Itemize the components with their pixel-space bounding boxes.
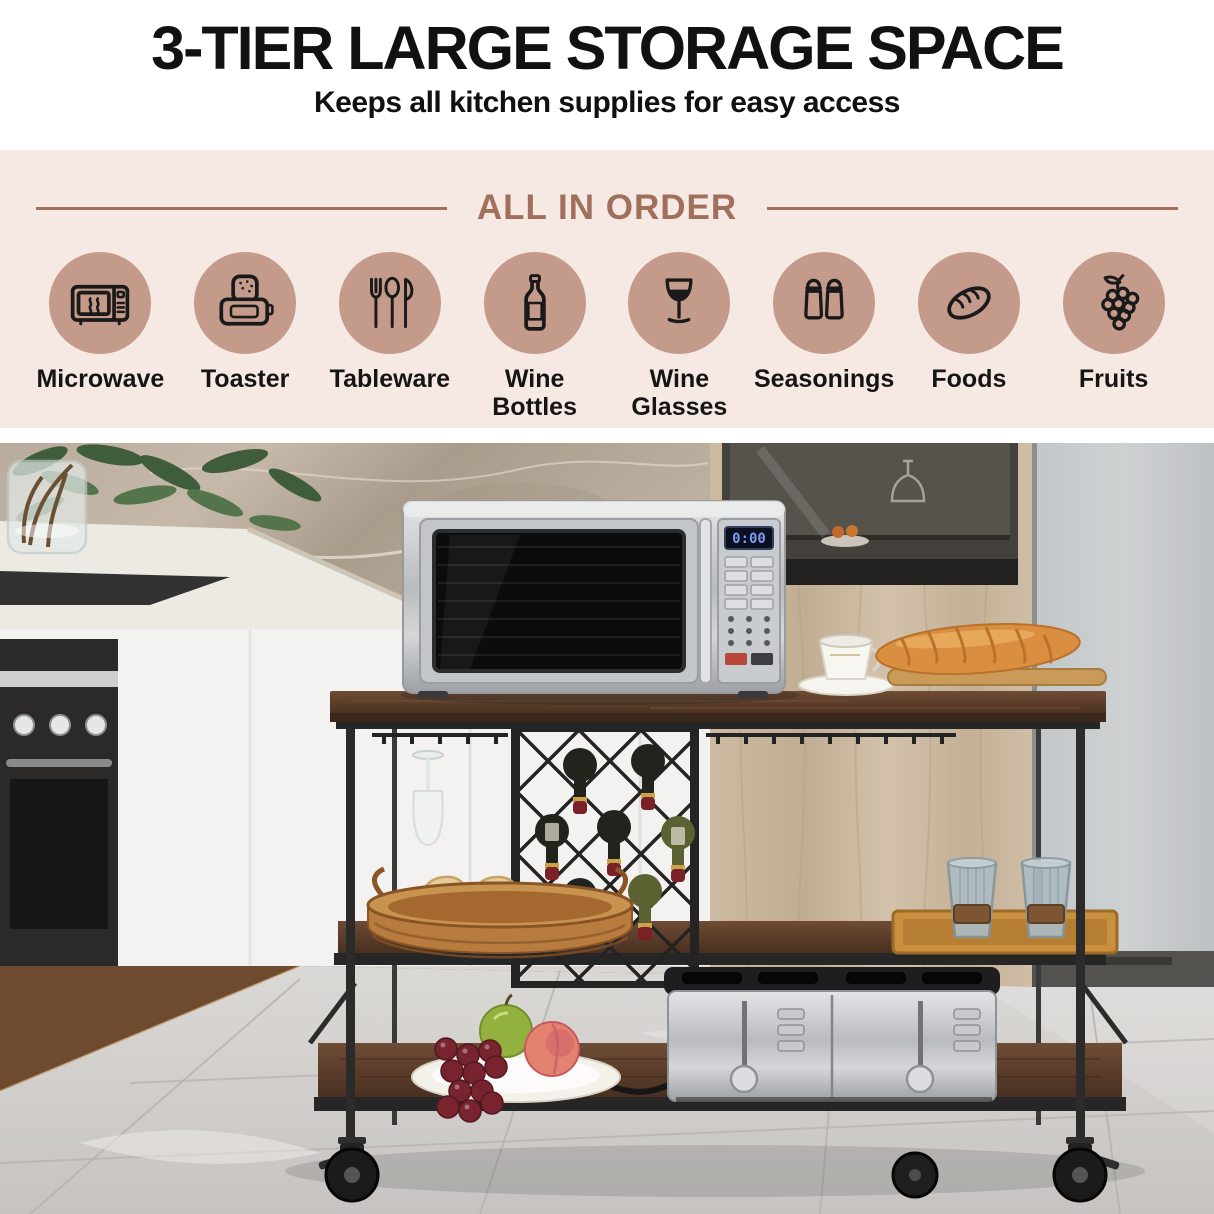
feature-item-microwave: Microwave <box>28 252 173 421</box>
feature-item-wine-glasses: Wine Glasses <box>607 252 752 421</box>
cart-shadow <box>285 1145 1145 1197</box>
feature-label: Foods <box>931 365 1006 393</box>
glass-vase <box>8 461 86 553</box>
heading-rule-left <box>36 207 447 210</box>
microwave-icon <box>63 266 137 340</box>
feature-item-tableware: Tableware <box>318 252 463 421</box>
product-infographic: { "header": { "title": "3-TIER LARGE STO… <box>0 0 1214 1214</box>
feature-icons-row: Microwave Toaster <box>0 252 1214 421</box>
features-section: ALL IN ORDER <box>0 150 1214 428</box>
feature-label: Microwave <box>36 365 164 393</box>
icon-circle <box>194 252 296 354</box>
icon-circle <box>484 252 586 354</box>
icon-circle <box>1063 252 1165 354</box>
toaster-icon <box>208 266 282 340</box>
fruits-grapes-icon <box>1077 266 1151 340</box>
product-photo: 0:00 <box>0 443 1214 1214</box>
icon-circle <box>773 252 875 354</box>
microwave-display: 0:00 <box>732 531 766 547</box>
feature-item-seasonings: Seasonings <box>752 252 897 421</box>
feature-label: Tableware <box>330 365 450 393</box>
feature-label: Toaster <box>201 365 289 393</box>
foods-bread-icon <box>932 266 1006 340</box>
feature-label: Wine Glasses <box>607 365 752 421</box>
icon-circle <box>49 252 151 354</box>
microwave-handle <box>700 519 711 683</box>
microwave: 0:00 <box>400 501 800 705</box>
icon-circle <box>628 252 730 354</box>
wine-glasses-icon <box>642 266 716 340</box>
microwave-control-panel: 0:00 <box>718 519 780 683</box>
feature-label: Seasonings <box>754 365 894 393</box>
feature-item-toaster: Toaster <box>173 252 318 421</box>
feature-label: Fruits <box>1079 365 1148 393</box>
wine-bottles-icon <box>498 266 572 340</box>
page-title: 3-TIER LARGE STORAGE SPACE <box>0 16 1214 80</box>
icon-circle <box>918 252 1020 354</box>
feature-item-wine-bottles: Wine Bottles <box>462 252 607 421</box>
tableware-icon <box>353 266 427 340</box>
seasonings-icon <box>787 266 861 340</box>
heading-rule-right <box>767 207 1178 210</box>
icon-circle <box>339 252 441 354</box>
page-subtitle: Keeps all kitchen supplies for easy acce… <box>0 86 1214 120</box>
feature-label: Wine Bottles <box>462 365 607 421</box>
features-heading: ALL IN ORDER <box>477 188 737 228</box>
photo-section: 0:00 <box>0 443 1214 1214</box>
feature-item-foods: Foods <box>897 252 1042 421</box>
header-section: 3-TIER LARGE STORAGE SPACE Keeps all kit… <box>0 0 1214 150</box>
section-divider <box>0 428 1214 443</box>
features-heading-row: ALL IN ORDER <box>0 188 1214 228</box>
built-in-oven <box>0 639 118 969</box>
feature-item-fruits: Fruits <box>1041 252 1186 421</box>
